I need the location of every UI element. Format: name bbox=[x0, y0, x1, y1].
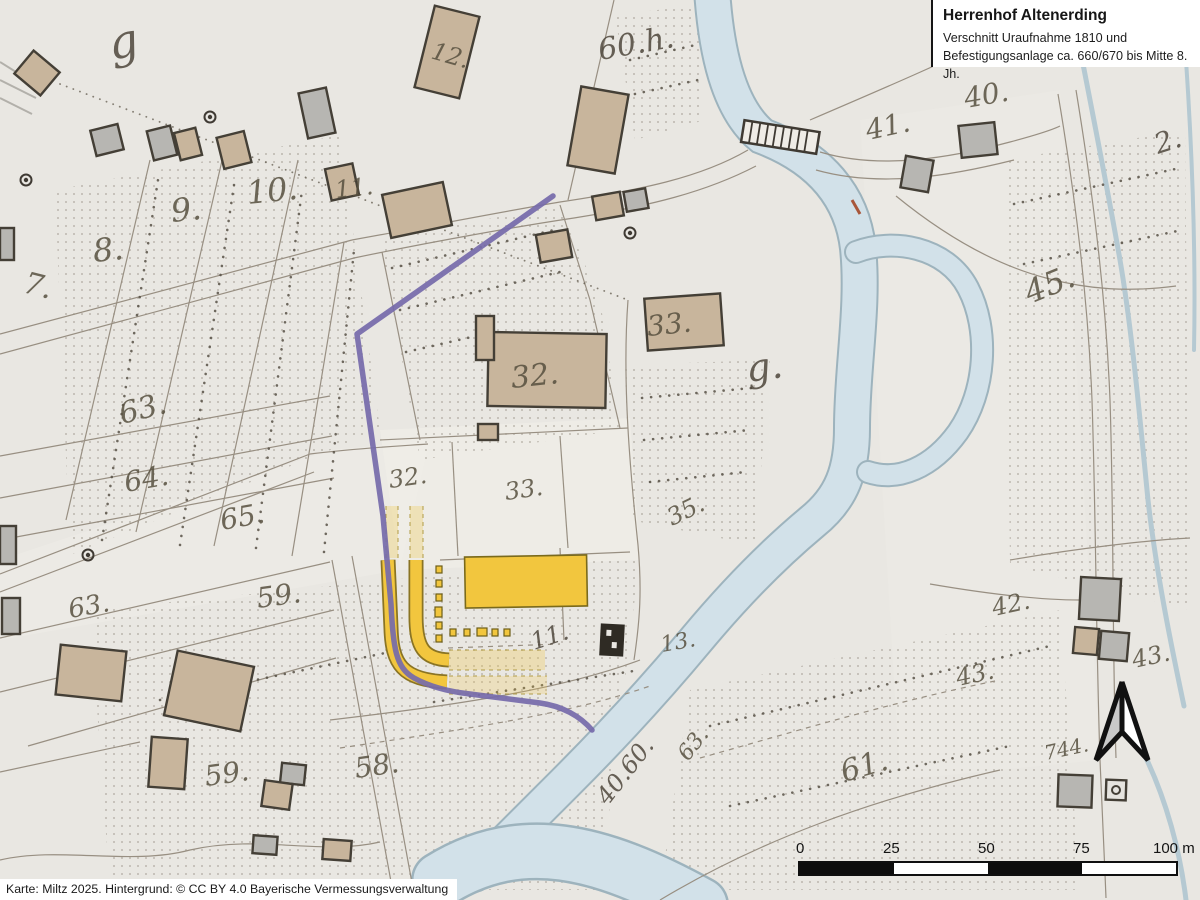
parcel-label: 32. bbox=[387, 461, 429, 494]
map-view: g7.8.9.10.11.12.60.h.41.40.45.33.32.g.63… bbox=[0, 0, 1200, 900]
map-subtitle-line2: Befestigungsanlage ca. 660/670 bis Mitte… bbox=[943, 48, 1188, 84]
parcel-label: 8. bbox=[91, 229, 125, 270]
scale-segment bbox=[894, 863, 988, 874]
map-subtitle-line1: Verschnitt Uraufnahme 1810 und bbox=[943, 30, 1188, 48]
scale-label-75: 75 bbox=[1073, 840, 1090, 857]
attribution-text: Karte: Miltz 2025. Hintergrund: © CC BY … bbox=[0, 879, 457, 900]
chapel-symbol bbox=[599, 623, 625, 656]
scale-segment bbox=[1082, 863, 1176, 874]
scale-label-0: 0 bbox=[796, 840, 804, 857]
scale-label-25: 25 bbox=[883, 840, 900, 857]
map-title: Herrenhof Altenerding bbox=[943, 7, 1188, 24]
scale-segment bbox=[800, 863, 894, 874]
parcel-label: 33. bbox=[503, 473, 545, 506]
parcel-label: 10. bbox=[245, 169, 300, 212]
parcel-label: 59. bbox=[254, 576, 303, 615]
parcel-label: 33. bbox=[645, 305, 693, 342]
parcel-label: 32. bbox=[509, 356, 560, 396]
parcel-label: 9. bbox=[169, 189, 203, 230]
parcel-label: 59. bbox=[202, 754, 251, 793]
parcel-label: g. bbox=[743, 342, 785, 391]
scale-label-50: 50 bbox=[978, 840, 995, 857]
map-title-box: Herrenhof Altenerding Verschnitt Uraufna… bbox=[931, 0, 1200, 67]
north-arrow-icon bbox=[1092, 676, 1156, 768]
herrenhof-building-overlay bbox=[465, 555, 588, 608]
historical-map-canvas: g7.8.9.10.11.12.60.h.41.40.45.33.32.g.63… bbox=[0, 0, 1200, 900]
scale-bar: 0 25 50 75 100 m bbox=[795, 840, 1200, 880]
scale-label-100: 100 m bbox=[1153, 840, 1195, 857]
parcel-label: 58. bbox=[352, 746, 401, 785]
parcel-label: 11. bbox=[334, 172, 375, 204]
scale-bar-segments bbox=[798, 861, 1178, 876]
scale-segment bbox=[988, 863, 1082, 874]
